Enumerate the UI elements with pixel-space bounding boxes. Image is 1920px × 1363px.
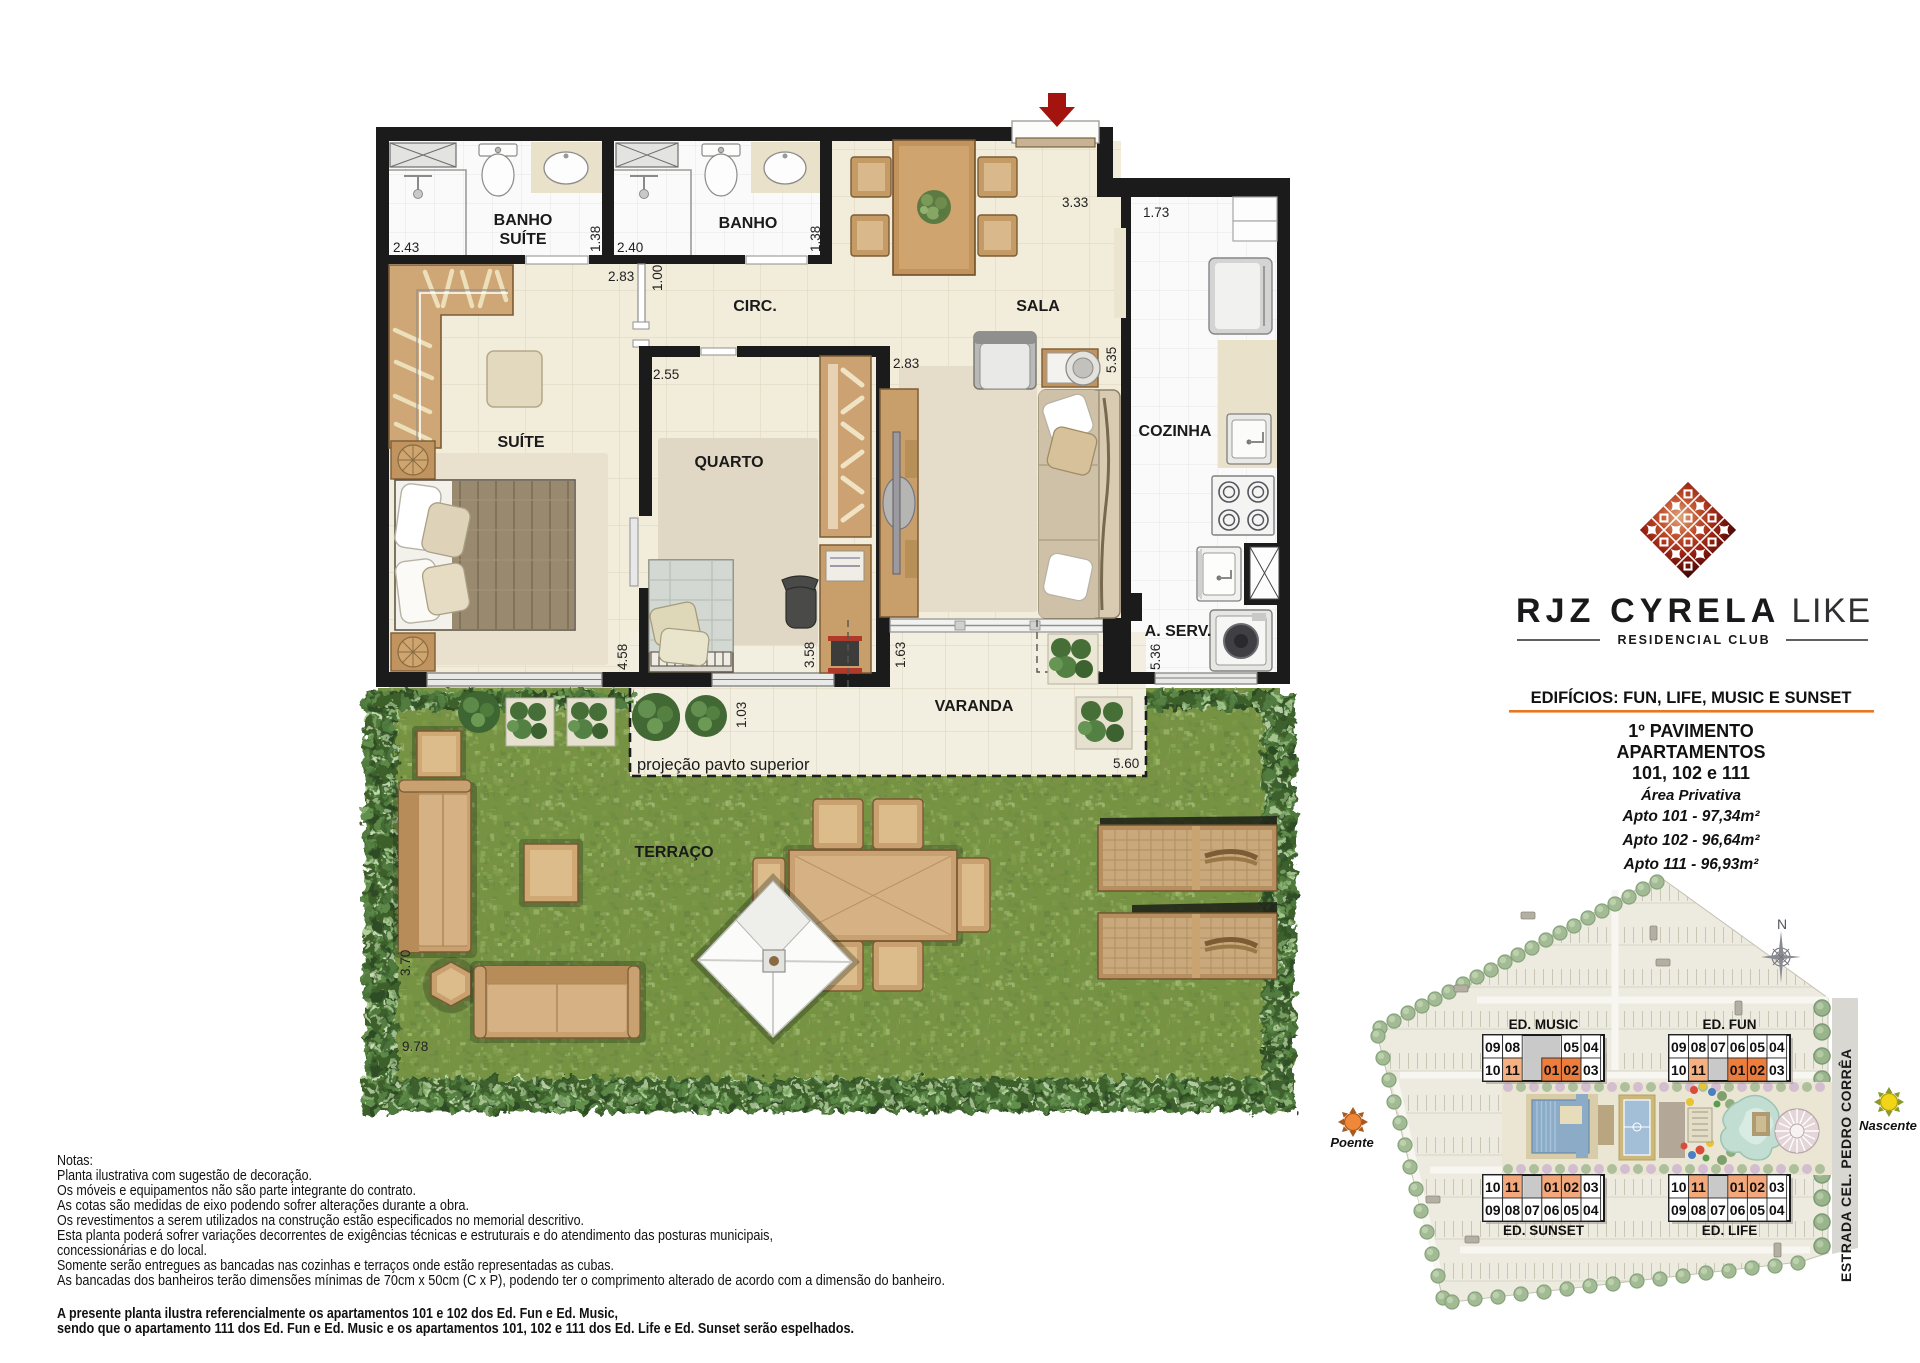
svg-text:3.70: 3.70 [398,950,413,976]
svg-text:02: 02 [1563,1179,1579,1195]
svg-text:1.63: 1.63 [893,642,908,668]
svg-text:09: 09 [1485,1039,1501,1055]
svg-text:03: 03 [1769,1062,1785,1078]
svg-text:9.78: 9.78 [402,1039,428,1054]
svg-text:RJZ CYRELA LIKE: RJZ CYRELA LIKE [1516,592,1872,630]
svg-text:1.38: 1.38 [588,226,603,252]
svg-text:04: 04 [1583,1039,1599,1055]
svg-text:01: 01 [1544,1179,1560,1195]
svg-text:CIRC.: CIRC. [733,298,777,315]
svg-text:05: 05 [1563,1202,1579,1218]
svg-text:04: 04 [1769,1039,1785,1055]
svg-text:ED. FUN: ED. FUN [1703,1017,1757,1032]
svg-text:11: 11 [1691,1062,1706,1078]
svg-text:TERRAÇO: TERRAÇO [634,844,713,861]
svg-text:APARTAMENTOS: APARTAMENTOS [1616,742,1765,762]
svg-text:ED. LIFE: ED. LIFE [1702,1223,1758,1238]
svg-text:03: 03 [1583,1062,1599,1078]
svg-text:09: 09 [1671,1039,1687,1055]
svg-text:02: 02 [1749,1062,1765,1078]
svg-text:03: 03 [1583,1179,1599,1195]
svg-text:11: 11 [1691,1179,1706,1195]
svg-text:3.58: 3.58 [802,642,817,668]
svg-text:06: 06 [1730,1202,1746,1218]
svg-text:05: 05 [1749,1202,1765,1218]
svg-text:projeção pavto superior: projeção pavto superior [637,756,810,774]
svg-text:06: 06 [1544,1202,1560,1218]
svg-text:101, 102 e 111: 101, 102 e 111 [1632,763,1750,783]
svg-text:07: 07 [1710,1202,1726,1218]
svg-text:3.33: 3.33 [1062,195,1088,210]
svg-text:SUÍTE: SUÍTE [499,229,546,248]
svg-text:05: 05 [1749,1039,1765,1055]
svg-text:QUARTO: QUARTO [694,454,763,471]
svg-text:09: 09 [1671,1202,1687,1218]
svg-text:1.73: 1.73 [1143,205,1169,220]
svg-text:sendo que o apartamento 111 do: sendo que o apartamento 111 dos Ed. Fun … [57,1320,854,1337]
svg-text:Área Privativa: Área Privativa [1640,787,1741,804]
svg-text:COZINHA: COZINHA [1139,423,1212,440]
svg-text:5.35: 5.35 [1104,347,1119,373]
svg-text:Apto 111 - 96,93m²: Apto 111 - 96,93m² [1623,856,1760,873]
svg-text:A. SERV.: A. SERV. [1145,623,1212,640]
svg-text:08: 08 [1505,1202,1521,1218]
svg-text:4.58: 4.58 [615,644,630,670]
svg-text:07: 07 [1710,1039,1726,1055]
svg-text:BANHO: BANHO [494,212,553,229]
svg-text:Nascente: Nascente [1859,1118,1917,1133]
svg-text:09: 09 [1485,1202,1501,1218]
svg-text:Poente: Poente [1330,1135,1373,1150]
svg-text:2.43: 2.43 [393,240,419,255]
svg-text:1.38: 1.38 [808,226,823,252]
svg-text:10: 10 [1485,1062,1501,1078]
svg-text:EDIFÍCIOS: FUN, LIFE, MUSIC E: EDIFÍCIOS: FUN, LIFE, MUSIC E SUNSET [1531,688,1852,707]
svg-text:As bancadas dos banheiros terã: As bancadas dos banheiros terão dimensõe… [57,1272,945,1289]
svg-text:1º PAVIMENTO: 1º PAVIMENTO [1628,721,1754,741]
svg-text:1.03: 1.03 [734,702,749,728]
svg-text:11: 11 [1505,1062,1520,1078]
svg-text:SALA: SALA [1016,298,1060,315]
svg-text:04: 04 [1769,1202,1785,1218]
svg-text:01: 01 [1544,1062,1560,1078]
svg-text:ED. MUSIC: ED. MUSIC [1509,1017,1579,1032]
svg-text:05: 05 [1563,1039,1579,1055]
svg-text:ESTRADA CEL. PEDRO CORRÊA: ESTRADA CEL. PEDRO CORRÊA [1837,1048,1854,1282]
svg-text:ED. SUNSET: ED. SUNSET [1503,1223,1585,1238]
svg-text:10: 10 [1485,1179,1501,1195]
svg-text:01: 01 [1730,1062,1746,1078]
svg-text:RESIDENCIAL CLUB: RESIDENCIAL CLUB [1617,633,1770,647]
svg-text:5.36: 5.36 [1148,644,1163,670]
svg-text:2.83: 2.83 [893,356,919,371]
svg-text:08: 08 [1691,1202,1707,1218]
svg-text:2.40: 2.40 [617,240,643,255]
svg-text:SUÍTE: SUÍTE [497,432,544,451]
svg-text:08: 08 [1691,1039,1707,1055]
svg-text:03: 03 [1769,1179,1785,1195]
svg-text:11: 11 [1505,1179,1520,1195]
svg-text:08: 08 [1505,1039,1521,1055]
svg-text:Apto 102 - 96,64m²: Apto 102 - 96,64m² [1622,832,1761,849]
svg-text:01: 01 [1730,1179,1746,1195]
svg-text:02: 02 [1749,1179,1765,1195]
svg-text:VARANDA: VARANDA [935,698,1014,715]
svg-text:5.60: 5.60 [1113,756,1139,771]
svg-text:10: 10 [1671,1179,1687,1195]
svg-text:2.83: 2.83 [608,269,634,284]
svg-text:06: 06 [1730,1039,1746,1055]
svg-text:02: 02 [1563,1062,1579,1078]
svg-text:07: 07 [1524,1202,1540,1218]
svg-text:2.55: 2.55 [653,367,679,382]
svg-text:BANHO: BANHO [719,215,778,232]
svg-text:10: 10 [1671,1062,1687,1078]
svg-text:Apto 101 - 97,34m²: Apto 101 - 97,34m² [1622,808,1761,825]
svg-text:N: N [1777,916,1787,932]
svg-text:1.00: 1.00 [650,265,665,291]
svg-text:04: 04 [1583,1202,1599,1218]
